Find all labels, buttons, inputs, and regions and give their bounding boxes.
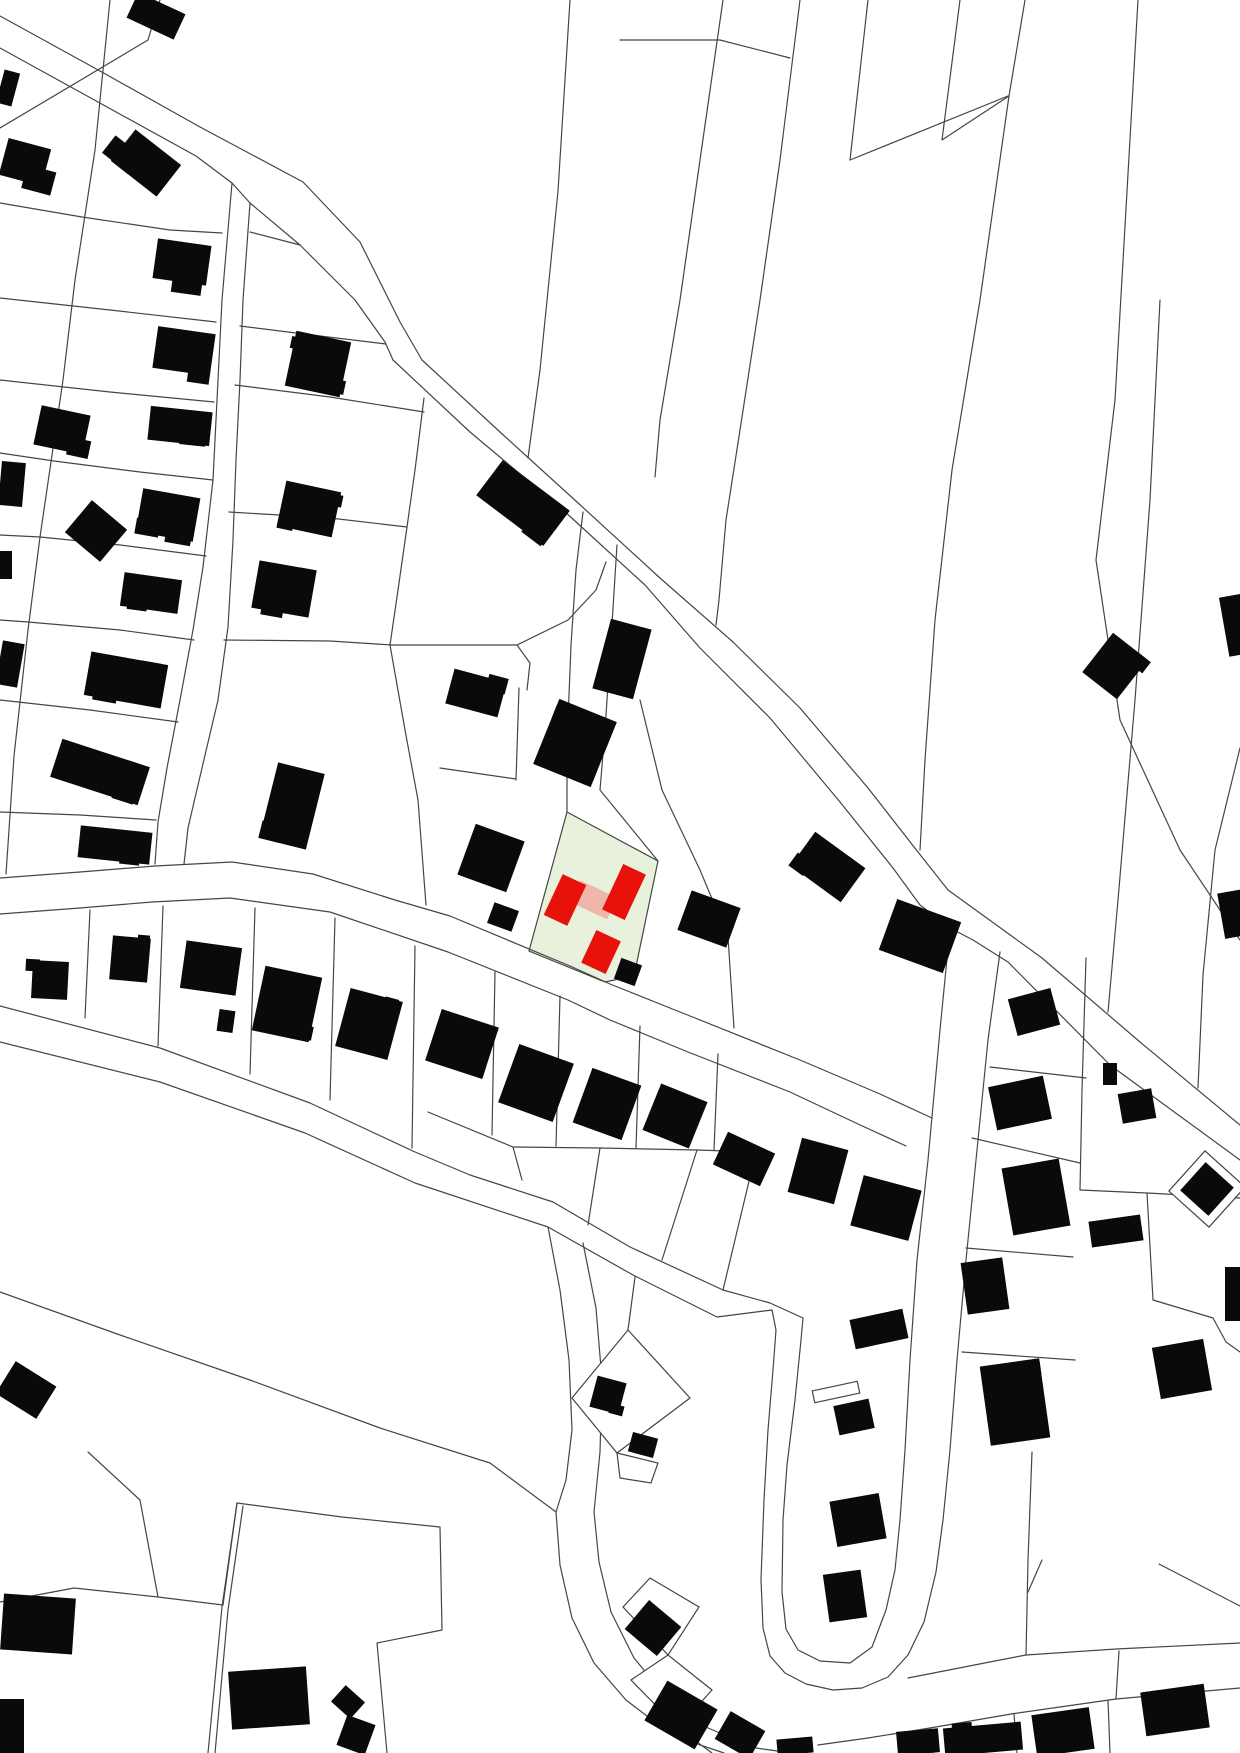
building-footprint bbox=[1103, 1063, 1117, 1085]
building-footprint-part bbox=[1142, 1690, 1160, 1704]
building-footprint-part bbox=[853, 1606, 866, 1618]
building-footprint-part bbox=[285, 1712, 304, 1725]
building-footprint-part bbox=[50, 1638, 71, 1653]
building-footprint-part bbox=[896, 1728, 940, 1753]
site-plan-map bbox=[0, 0, 1240, 1753]
building-footprint bbox=[217, 1009, 236, 1033]
building-footprint bbox=[0, 1699, 24, 1753]
building-footprint bbox=[829, 1493, 886, 1547]
building-footprint-part bbox=[1031, 1707, 1094, 1753]
building-footprint bbox=[0, 1594, 76, 1655]
building-footprint bbox=[1225, 1267, 1240, 1321]
building-footprint-part bbox=[217, 1009, 236, 1033]
building-footprint bbox=[109, 932, 151, 982]
building-footprint bbox=[0, 461, 26, 507]
building-footprint bbox=[1031, 1707, 1094, 1753]
building-footprint-part bbox=[137, 935, 150, 946]
building-footprint-part bbox=[961, 1257, 1010, 1314]
building-footprint bbox=[980, 1358, 1051, 1446]
building-footprint bbox=[823, 1570, 867, 1623]
building-footprint-part bbox=[25, 959, 40, 972]
building-footprint bbox=[1118, 1088, 1157, 1123]
building-footprint-part bbox=[829, 1493, 886, 1547]
building-footprint bbox=[180, 940, 242, 995]
building-footprint-part bbox=[1002, 1158, 1071, 1235]
building-footprint bbox=[896, 1728, 940, 1753]
building-footprint-part bbox=[1225, 1267, 1240, 1321]
building-footprint-part bbox=[0, 461, 26, 507]
building-footprint-part bbox=[152, 326, 215, 376]
building-footprint bbox=[0, 551, 12, 579]
building-footprint-part bbox=[1118, 1088, 1157, 1123]
building-footprint-part bbox=[0, 1699, 24, 1753]
building-footprint-part bbox=[232, 1673, 251, 1686]
building-footprint bbox=[1152, 1339, 1212, 1399]
building-footprint bbox=[961, 1257, 1010, 1314]
building-footprint-part bbox=[220, 982, 238, 996]
building-footprint-part bbox=[0, 551, 12, 579]
building-footprint-part bbox=[1103, 1063, 1117, 1085]
building-footprint-part bbox=[952, 1722, 973, 1736]
building-footprint-part bbox=[127, 595, 149, 612]
building-footprint bbox=[1002, 1158, 1071, 1235]
building-footprint-part bbox=[119, 852, 140, 866]
building-footprint bbox=[228, 1666, 310, 1729]
building-footprint bbox=[1140, 1684, 1210, 1736]
building-footprint-part bbox=[179, 428, 207, 447]
building-footprint-part bbox=[1024, 1362, 1042, 1376]
site-plan-svg bbox=[0, 0, 1240, 1753]
